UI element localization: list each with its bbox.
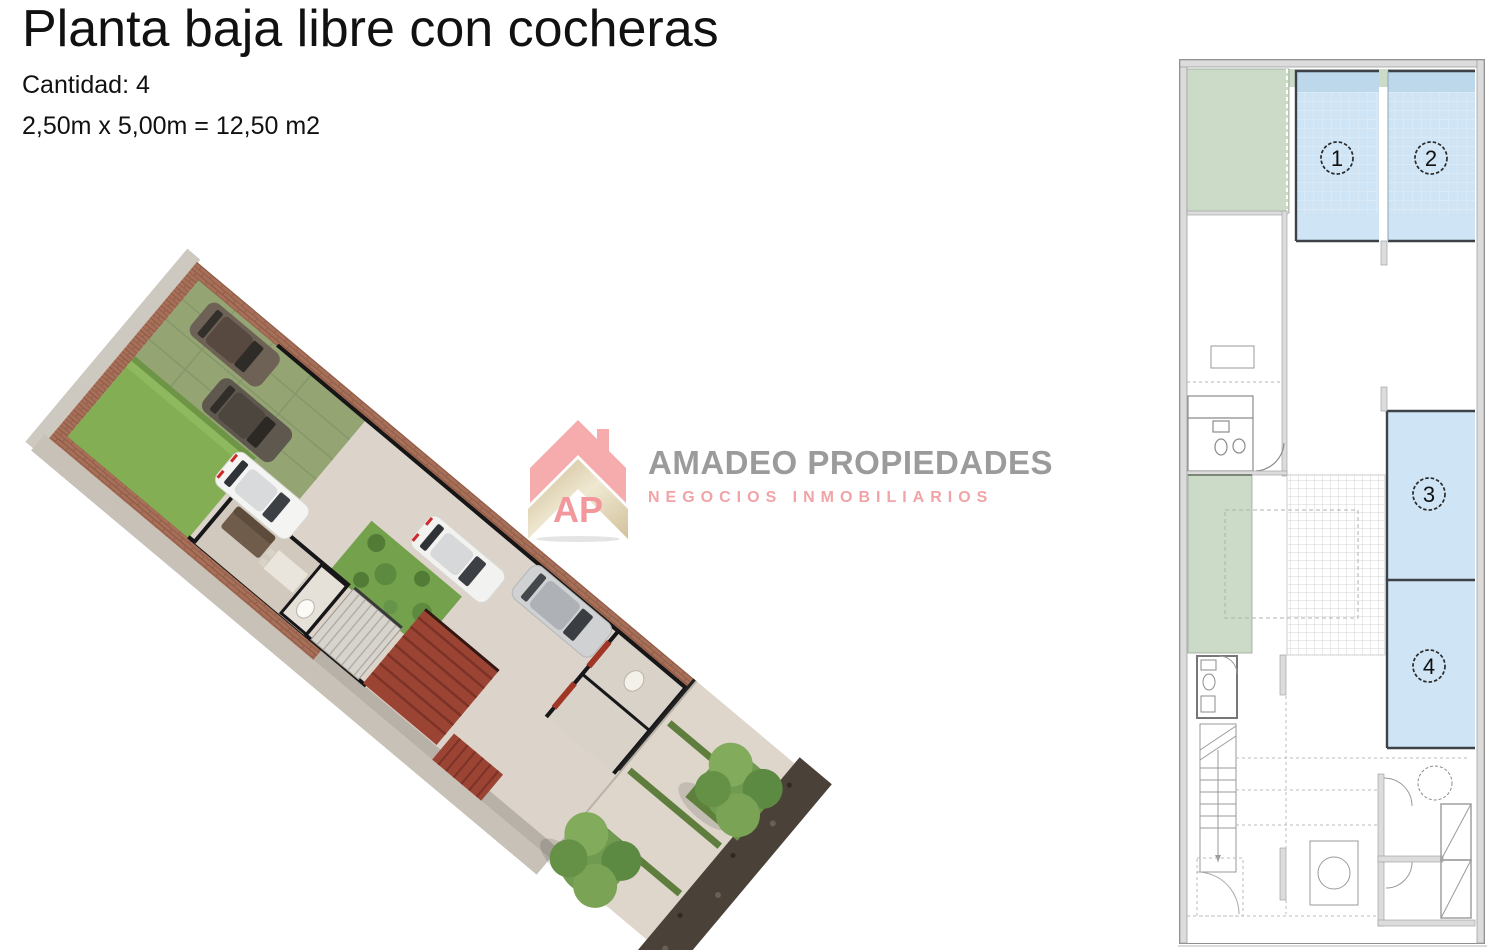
brand-tagline: NEGOCIOS INMOBILIARIOS (648, 489, 1053, 507)
logo-monogram: AP (553, 489, 603, 530)
parking-1-number: 1 (1331, 146, 1343, 171)
brand-name: AMADEO PROPIEDADES (648, 444, 1053, 482)
parking-2-number: 2 (1425, 146, 1437, 171)
wall-top (1180, 60, 1484, 67)
parking-space-4: 4 (1387, 580, 1475, 748)
parking-space-1: 1 (1296, 71, 1379, 241)
parking-space-3: 3 (1387, 411, 1475, 580)
parking-3-number: 3 (1423, 482, 1435, 507)
laundry (1310, 841, 1358, 905)
wall-stub-3 (1280, 655, 1286, 695)
staircase (1200, 724, 1236, 872)
wall-v1 (1282, 211, 1287, 476)
wall-h1 (1187, 211, 1287, 215)
floor-plan: 1 2 (1178, 56, 1487, 950)
lot-group (23, 246, 831, 950)
green-patio-mid (1188, 475, 1252, 653)
watermark: AP AMADEO PROPIEDADES NEGOCIOS INMOBILIA… (522, 418, 1002, 550)
brand-logo-icon: AP (522, 418, 634, 544)
parking-4-number: 4 (1423, 654, 1435, 679)
page: Planta baja libre con cocheras Cantidad:… (0, 0, 1487, 950)
tiled-patio (1287, 475, 1385, 655)
wall-stub-4 (1280, 848, 1286, 900)
bathroom-2 (1197, 656, 1237, 718)
wall-stub-1 (1381, 241, 1387, 265)
green-patio-top (1187, 69, 1289, 213)
parking-space-2: 2 (1388, 71, 1475, 241)
wall-right (1477, 60, 1484, 943)
wall-left (1180, 60, 1187, 943)
wall-stub-2 (1381, 387, 1387, 411)
